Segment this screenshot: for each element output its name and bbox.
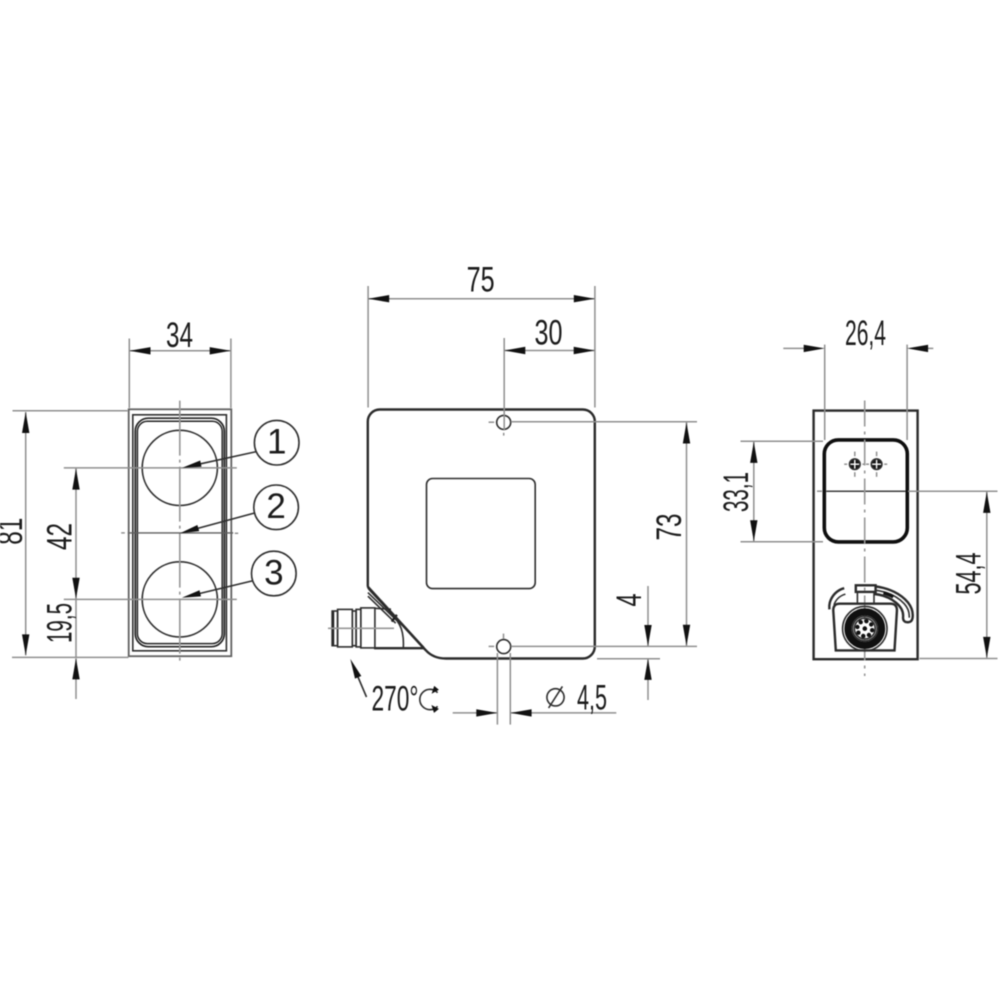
svg-text:73: 73	[650, 514, 689, 541]
svg-text:2: 2	[266, 487, 285, 526]
svg-text:19,5: 19,5	[41, 603, 80, 643]
svg-text:54,4: 54,4	[950, 553, 989, 595]
svg-text:75: 75	[467, 261, 495, 300]
svg-text:81: 81	[0, 518, 30, 545]
svg-text:42: 42	[41, 523, 80, 550]
svg-text:1: 1	[267, 423, 286, 462]
svg-text:270°: 270°	[372, 680, 419, 719]
svg-text:33,1: 33,1	[717, 472, 756, 512]
svg-text:4,5: 4,5	[577, 679, 607, 718]
svg-text:4: 4	[610, 594, 649, 607]
svg-text:26,4: 26,4	[845, 314, 886, 353]
svg-text:30: 30	[535, 314, 563, 353]
svg-text:3: 3	[264, 553, 283, 592]
svg-text:34: 34	[166, 316, 193, 355]
